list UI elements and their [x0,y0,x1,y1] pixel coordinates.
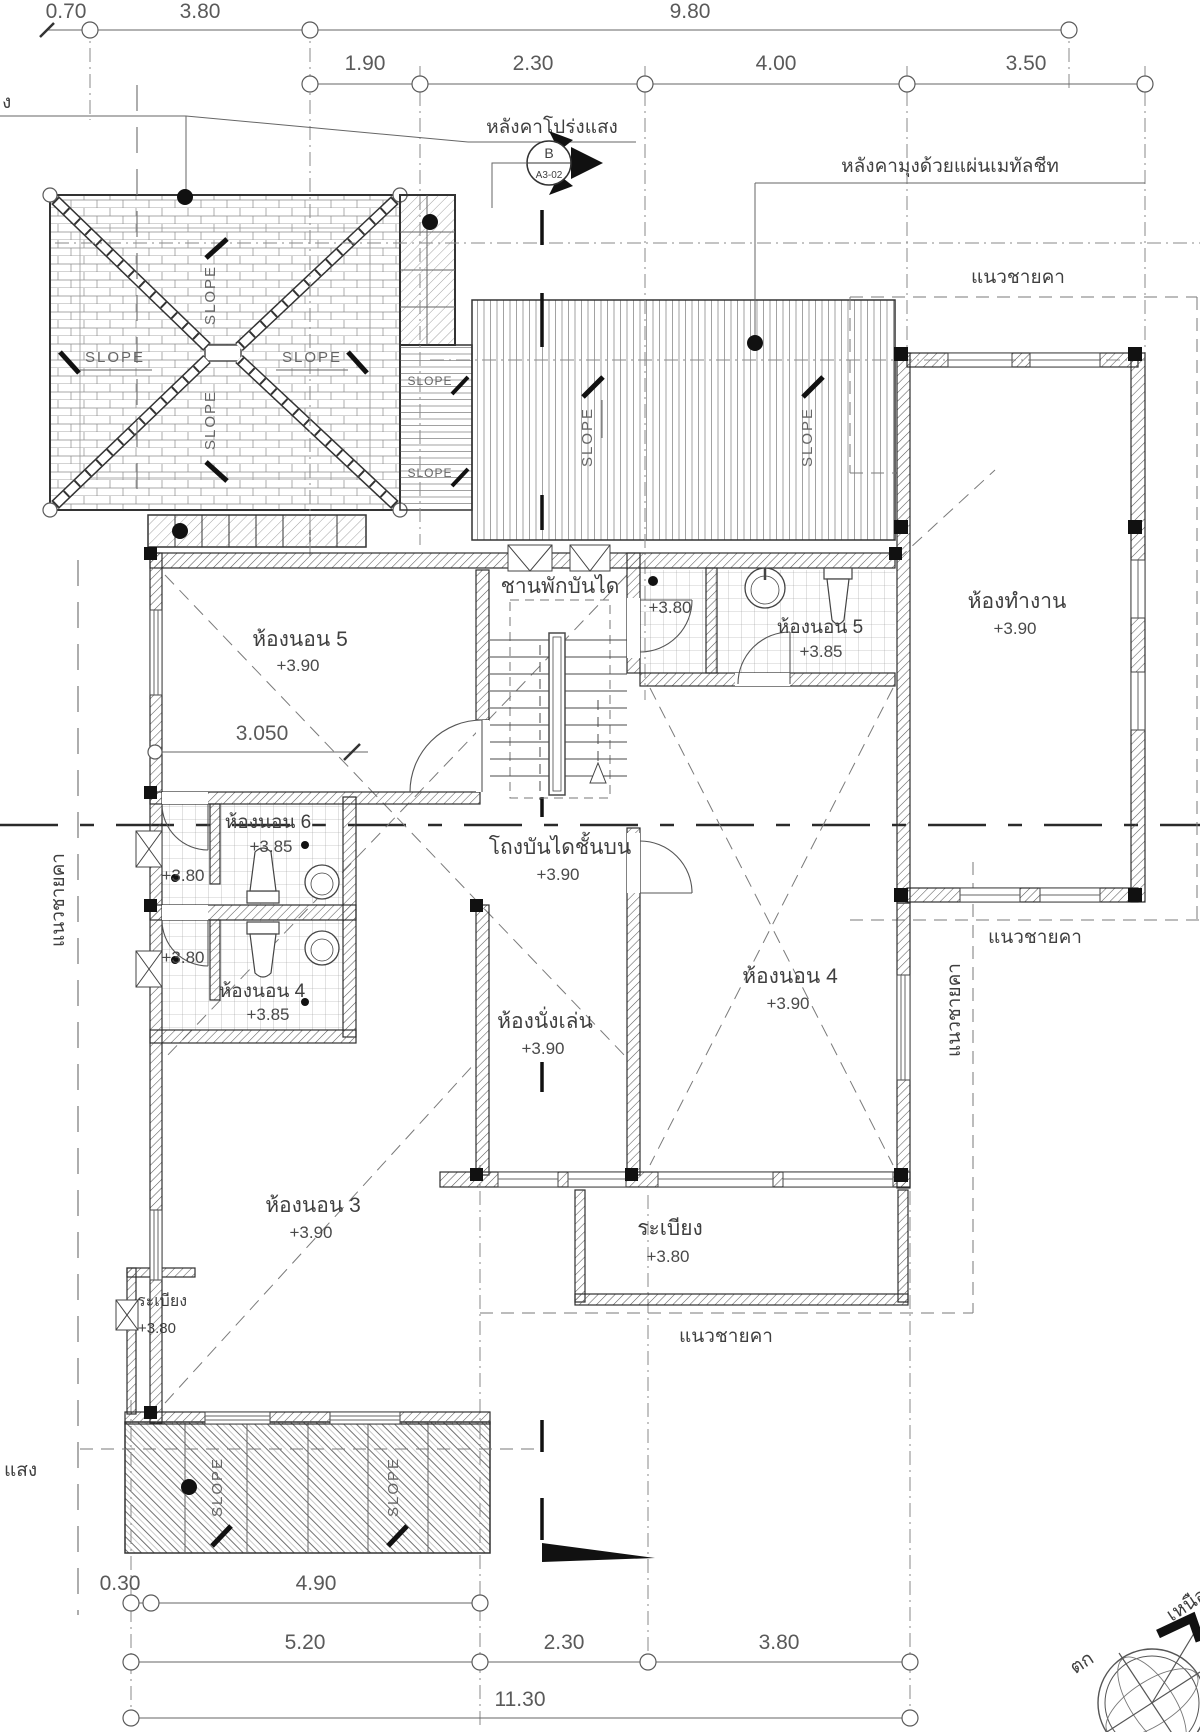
bottom-roof-strip [125,1422,490,1553]
dim-4-00: 4.00 [756,52,797,75]
leader-dot [172,523,188,539]
slope-label: SLOPE [202,390,219,450]
bath-top-label: ห้องนอน 5 [777,617,863,638]
eave-label-top-right: แนวชายคา [971,267,1065,288]
floor-plan-drawing: 0.70 3.80 9.80 1.90 2.30 4.00 3.50 หลังค… [0,0,1200,1732]
dim-9-80: 9.80 [670,0,711,23]
eave-label-right: แนวชายคา [988,927,1082,948]
bath6-elev: +3.85 [249,837,292,856]
metal-sheet-roof [472,300,895,540]
dim-2-30-top: 2.30 [513,52,554,75]
dim-5-20: 5.20 [285,1631,326,1654]
staircase [490,633,627,800]
stair-hall-elev: +3.90 [536,865,579,884]
leader-dot [747,335,763,351]
dimension-row-top-1: 0.70 3.80 9.80 [40,0,1077,38]
bath4-elev: +3.85 [246,1005,289,1024]
dim-3-050: 3.050 [236,722,289,745]
slope-label: SLOPE [282,349,342,366]
bedroom3-label: ห้องนอน 3 [265,1194,361,1217]
partial-text-top-left: ง [2,92,11,113]
slope-label: SLOPE [407,374,452,388]
bath-top-elev: +3.85 [799,642,842,661]
section-marker: B A3-02 [492,131,603,208]
dimension-row-top-2: 1.90 2.30 4.00 3.50 [302,52,1153,92]
stair-landing-label: ชานพักบันได [501,574,620,598]
stair-hall-label: โถงบันไดชั้นบน [489,832,631,859]
dim-0-30: 0.30 [100,1572,141,1595]
slope-label: SLOPE [385,1457,402,1517]
dim-3-80-bottom: 3.80 [759,1631,800,1654]
partial-text-bottom-left: แสง [4,1460,37,1481]
side-strip-roof [400,345,472,510]
bedroom5-elev: +3.90 [276,656,319,675]
dim-11-30: 11.30 [495,1688,546,1711]
leader-dot [177,189,193,205]
bath4-label: ห้องนอน 4 [219,981,306,1002]
dim-3-80-top: 3.80 [180,0,221,23]
dim-0-70: 0.70 [46,0,87,23]
metal-roof-label: หลังคามุงด้วยแผ่นเมทัลชีท [841,155,1059,178]
slope-label: SLOPE [85,349,145,366]
bath6-label: ห้องนอน 6 [225,812,311,833]
bedroom5-label: ห้องนอน 5 [252,628,348,651]
office-elev: +3.90 [993,619,1036,638]
dim-4-90: 4.90 [296,1572,337,1595]
dimension-rows-bottom: 0.30 4.90 5.20 2.30 3.80 11.30 [100,1572,918,1726]
slope-label: SLOPE [209,1457,226,1517]
leader-dot [422,214,438,230]
section-arrow-wedge [542,1543,655,1562]
living-label: ห้องนั่งเล่น [497,1006,593,1033]
slope-label: SLOPE [202,265,219,325]
bath4-wet-elev: +3.80 [161,948,204,967]
section-letter: B [544,145,553,161]
living-elev: +3.90 [521,1039,564,1058]
bedroom4-label: ห้องนอน 4 [742,965,838,988]
slope-label: SLOPE [579,407,596,467]
dimension-mid: 3.050 [148,722,368,760]
slope-label: SLOPE [799,407,816,467]
dim-3-50: 3.50 [1006,52,1047,75]
bedroom4-elev: +3.90 [766,994,809,1013]
balcony-right-label: ระเบียง [637,1217,703,1240]
compass-west-label: ตก [1066,1648,1097,1679]
bath-top-wet-elev: +3.80 [648,598,691,617]
eave-label-left-vertical: แนวชายคา [48,853,69,947]
balcony-left-elev: +3.80 [138,1320,176,1337]
floor-plan-sheet: 0.70 3.80 9.80 1.90 2.30 4.00 3.50 หลังค… [0,0,1200,1732]
bedroom3-elev: +3.90 [289,1223,332,1242]
balcony-right-elev: +3.80 [646,1247,689,1266]
office-label: ห้องทำงาน [968,590,1067,613]
eave-label-right-vertical: แนวชายคา [944,963,965,1057]
compass: ตก เหนือ [1066,1585,1200,1732]
dim-1-90: 1.90 [345,52,386,75]
slope-label: SLOPE [407,466,452,480]
bath6-wet-elev: +3.80 [161,866,204,885]
eave-label-bottom: แนวชายคา [679,1326,773,1347]
dim-2-30-bottom: 2.30 [544,1631,585,1654]
section-sheet: A3-02 [536,170,563,181]
balcony-left-label: ระเบียง [137,1292,187,1310]
